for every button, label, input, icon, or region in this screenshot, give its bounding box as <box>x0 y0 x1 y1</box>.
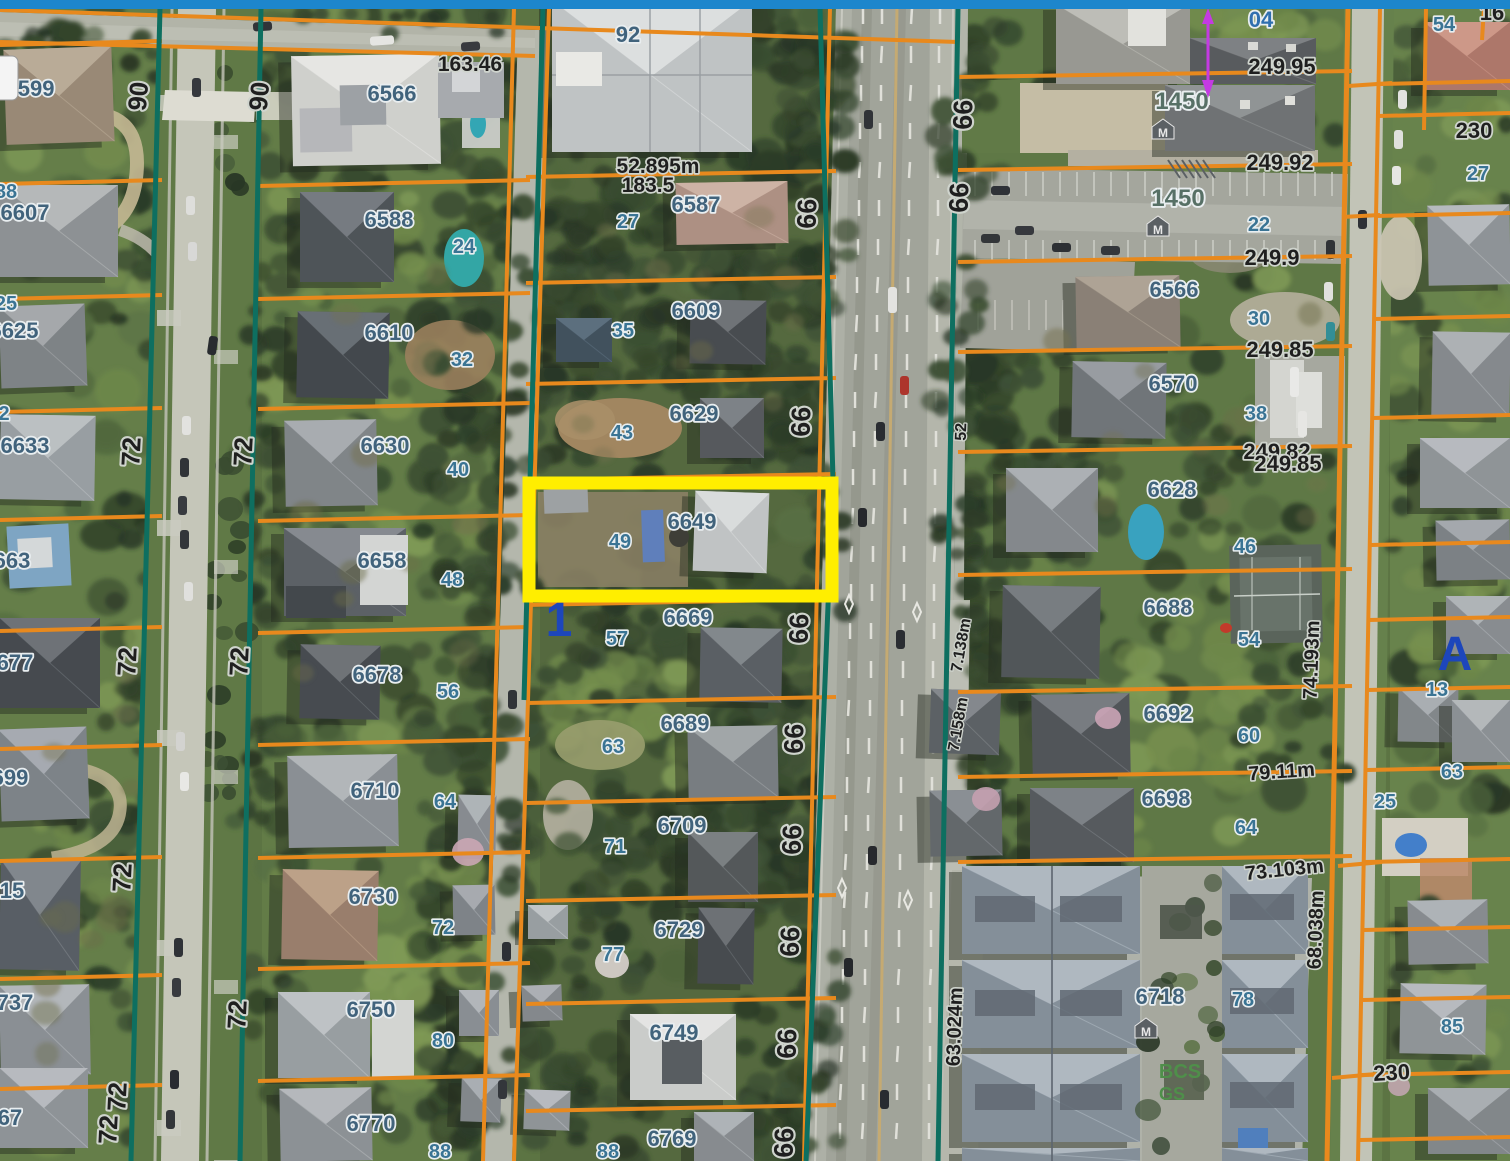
svg-text:22: 22 <box>1248 214 1270 236</box>
svg-text:230: 230 <box>1456 118 1493 143</box>
svg-text:46: 46 <box>1234 536 1256 558</box>
svg-text:M: M <box>1141 1025 1151 1039</box>
svg-text:6769: 6769 <box>648 1126 697 1151</box>
svg-text:40: 40 <box>447 459 469 481</box>
svg-text:6749: 6749 <box>650 1020 699 1045</box>
svg-text:92: 92 <box>616 22 640 47</box>
svg-text:66: 66 <box>778 723 809 754</box>
svg-text:64: 64 <box>434 791 457 813</box>
svg-text:6587: 6587 <box>672 192 721 217</box>
svg-text:163.46: 163.46 <box>438 53 502 76</box>
svg-text:72: 72 <box>111 646 142 676</box>
svg-text:30: 30 <box>1248 308 1270 330</box>
svg-text:56: 56 <box>437 681 459 703</box>
svg-text:63.024m: 63.024m <box>943 987 968 1067</box>
svg-text:43: 43 <box>611 422 633 444</box>
svg-text:6610: 6610 <box>365 320 414 345</box>
svg-text:74.193m: 74.193m <box>1300 620 1325 700</box>
svg-text:72: 72 <box>101 1081 132 1111</box>
svg-text:6709: 6709 <box>658 813 707 838</box>
svg-text:77: 77 <box>602 944 624 966</box>
svg-text:54: 54 <box>1433 14 1456 36</box>
svg-text:6689: 6689 <box>661 711 710 736</box>
svg-text:88: 88 <box>429 1141 451 1161</box>
svg-text:6658: 6658 <box>358 548 407 573</box>
svg-text:72: 72 <box>223 646 254 676</box>
svg-text:M: M <box>1153 223 1163 237</box>
svg-text:72: 72 <box>221 999 252 1029</box>
svg-text:6698: 6698 <box>1142 786 1191 811</box>
svg-text:249.85: 249.85 <box>1246 337 1313 362</box>
svg-text:88: 88 <box>597 1141 619 1161</box>
svg-text:6649: 6649 <box>668 509 717 534</box>
svg-text:72: 72 <box>227 436 258 466</box>
svg-text:183.5: 183.5 <box>622 174 675 197</box>
svg-text:71: 71 <box>604 836 626 858</box>
svg-text:6609: 6609 <box>672 298 721 323</box>
svg-text:6730: 6730 <box>349 884 398 909</box>
svg-text:90: 90 <box>122 81 154 112</box>
svg-text:66: 66 <box>774 926 805 957</box>
svg-text:6750: 6750 <box>347 997 396 1022</box>
svg-text:677: 677 <box>0 650 33 675</box>
svg-text:2: 2 <box>0 403 10 425</box>
svg-text:90: 90 <box>243 81 275 112</box>
svg-text:249.85: 249.85 <box>1254 451 1321 476</box>
svg-text:64: 64 <box>1235 817 1258 839</box>
svg-text:35: 35 <box>612 320 634 342</box>
svg-text:63: 63 <box>602 736 624 758</box>
svg-text:1450: 1450 <box>1155 88 1208 115</box>
svg-text:249.9: 249.9 <box>1244 245 1299 270</box>
svg-text:699: 699 <box>0 765 28 790</box>
svg-text:72: 72 <box>432 917 454 939</box>
svg-text:6718: 6718 <box>1136 984 1185 1009</box>
svg-text:6770: 6770 <box>347 1111 396 1136</box>
svg-text:25: 25 <box>0 293 17 315</box>
svg-text:68.038m: 68.038m <box>1304 890 1329 970</box>
svg-text:54: 54 <box>1238 629 1261 651</box>
svg-text:6570: 6570 <box>1149 371 1198 396</box>
svg-text:66: 66 <box>776 824 807 855</box>
svg-text:249.92: 249.92 <box>1246 150 1313 175</box>
svg-text:79.11m: 79.11m <box>1248 759 1316 786</box>
svg-text:66: 66 <box>947 99 978 130</box>
svg-text:57: 57 <box>606 628 628 650</box>
svg-text:66: 66 <box>943 182 974 213</box>
svg-text:60: 60 <box>1238 725 1260 747</box>
svg-text:27: 27 <box>617 211 639 233</box>
svg-text:230: 230 <box>1373 1059 1411 1086</box>
svg-text:72: 72 <box>115 436 146 466</box>
svg-text:67: 67 <box>0 1105 22 1130</box>
svg-text:A: A <box>1438 628 1473 681</box>
svg-text:85: 85 <box>1441 1016 1463 1038</box>
svg-text:49: 49 <box>609 531 631 553</box>
svg-text:32: 32 <box>451 349 473 371</box>
svg-text:88: 88 <box>0 181 17 203</box>
svg-text:24: 24 <box>453 236 476 258</box>
svg-text:38: 38 <box>1245 403 1267 425</box>
svg-text:78: 78 <box>1232 989 1254 1011</box>
svg-text:6669: 6669 <box>664 605 713 630</box>
svg-text:66: 66 <box>768 1127 799 1158</box>
svg-text:66: 66 <box>783 613 814 644</box>
svg-text:63: 63 <box>1441 761 1463 783</box>
svg-text:6630: 6630 <box>361 433 410 458</box>
svg-text:6566: 6566 <box>1150 277 1199 302</box>
svg-text:663: 663 <box>0 548 30 573</box>
svg-text:72: 72 <box>92 1114 123 1144</box>
svg-text:6692: 6692 <box>1144 701 1193 726</box>
svg-text:04: 04 <box>1249 7 1274 32</box>
svg-text:13: 13 <box>1426 679 1448 701</box>
svg-text:6628: 6628 <box>1148 477 1197 502</box>
svg-text:52: 52 <box>953 423 971 441</box>
svg-text:66: 66 <box>771 1028 802 1059</box>
svg-text:M: M <box>1158 126 1168 140</box>
svg-text:6566: 6566 <box>368 81 417 106</box>
svg-text:80: 80 <box>432 1030 454 1052</box>
svg-text:1: 1 <box>546 594 573 647</box>
svg-text:6729: 6729 <box>655 917 704 942</box>
svg-text:15: 15 <box>0 878 24 903</box>
svg-text:BCS: BCS <box>1159 1061 1201 1083</box>
svg-text:27: 27 <box>1467 163 1489 185</box>
svg-text:25: 25 <box>1374 791 1396 813</box>
svg-text:6633: 6633 <box>1 433 50 458</box>
svg-text:249.95: 249.95 <box>1248 54 1315 79</box>
svg-text:6678: 6678 <box>353 662 402 687</box>
svg-text:737: 737 <box>0 990 33 1015</box>
svg-text:48: 48 <box>441 569 463 591</box>
svg-text:72: 72 <box>106 862 137 892</box>
svg-text:6607: 6607 <box>1 200 50 225</box>
svg-text:6629: 6629 <box>670 401 719 426</box>
svg-text:6625: 6625 <box>0 318 38 343</box>
svg-text:6710: 6710 <box>351 778 400 803</box>
svg-text:GS: GS <box>1159 1084 1185 1104</box>
svg-text:1450: 1450 <box>1151 185 1204 212</box>
svg-text:66: 66 <box>785 406 816 437</box>
svg-text:6588: 6588 <box>365 207 414 232</box>
svg-text:6688: 6688 <box>1144 595 1193 620</box>
svg-text:66: 66 <box>791 198 822 229</box>
